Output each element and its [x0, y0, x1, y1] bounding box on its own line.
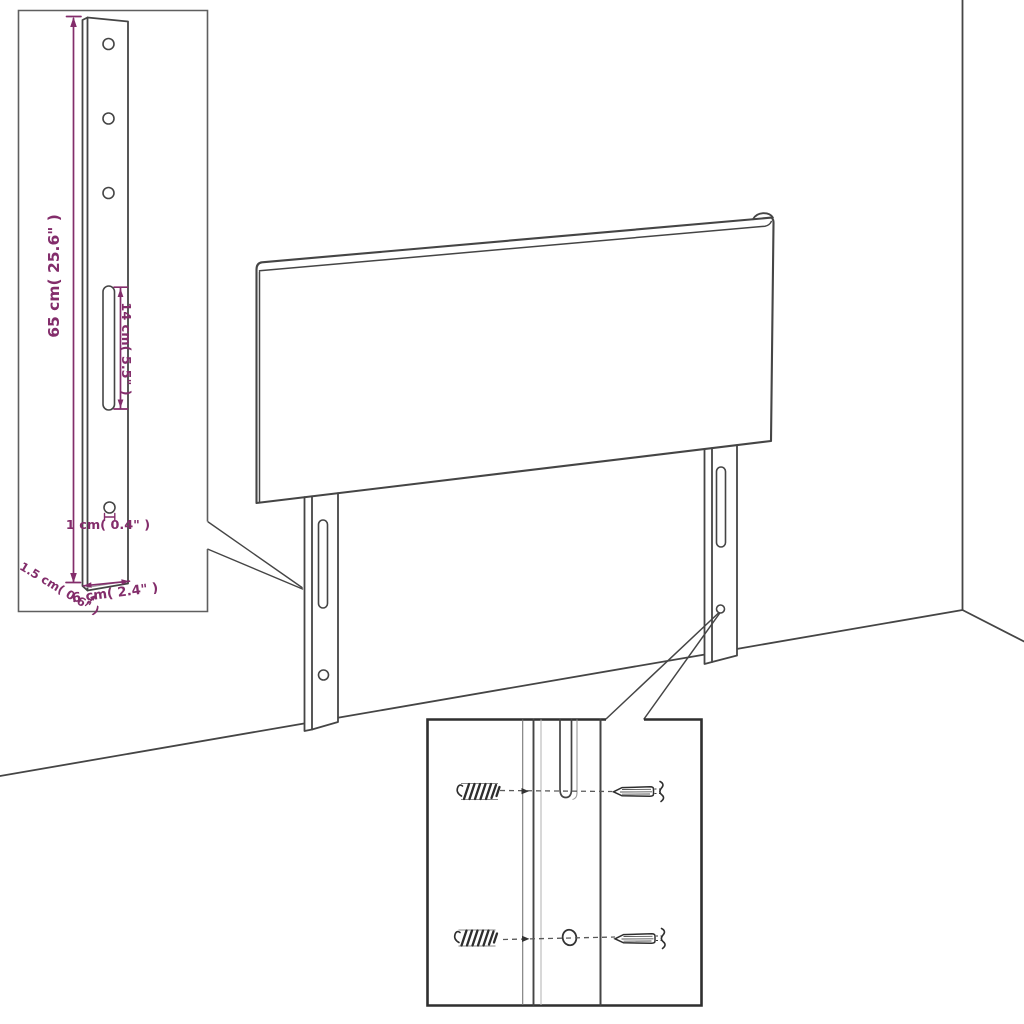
- headboard-outline: [257, 218, 774, 503]
- mounting-box-border: [428, 720, 702, 1006]
- headboard-top-roll-inner-line: [260, 222, 772, 271]
- callout-line-right: [644, 614, 720, 720]
- left-leg: [305, 493, 339, 731]
- callout-line-left: [606, 614, 718, 720]
- mounting-detail-inset: [428, 720, 702, 1006]
- left-leg-front-face: [312, 493, 338, 729]
- headboard: [257, 213, 774, 503]
- bracket-detail-inset: 65 cm( 25.6" ) 14 cm( 5.5" ) 1 cm( 0.4" …: [17, 11, 207, 618]
- assembly-diagram-page: 65 cm( 25.6" ) 14 cm( 5.5" ) 1 cm( 0.4" …: [0, 0, 1024, 1024]
- dimension-label-height: 65 cm( 25.6" ): [45, 214, 63, 338]
- left-leg-slot: [319, 520, 328, 608]
- headboard-assembly-diagram: 65 cm( 25.6" ) 14 cm( 5.5" ) 1 cm( 0.4" …: [0, 0, 1024, 1024]
- dimension-label-slot: 14 cm( 5.5" ): [118, 302, 133, 395]
- left-leg-side-face: [305, 497, 313, 731]
- dimension-label-hole: 1 cm( 0.4" ): [66, 518, 150, 533]
- right-leg-slot: [717, 467, 726, 547]
- left-leg-hole: [319, 670, 329, 680]
- callout-right-leg: [606, 614, 720, 720]
- callout-left-leg: [208, 522, 303, 590]
- right-leg-hole: [717, 605, 725, 613]
- floor-line-right: [963, 610, 1024, 642]
- right-leg: [705, 445, 738, 664]
